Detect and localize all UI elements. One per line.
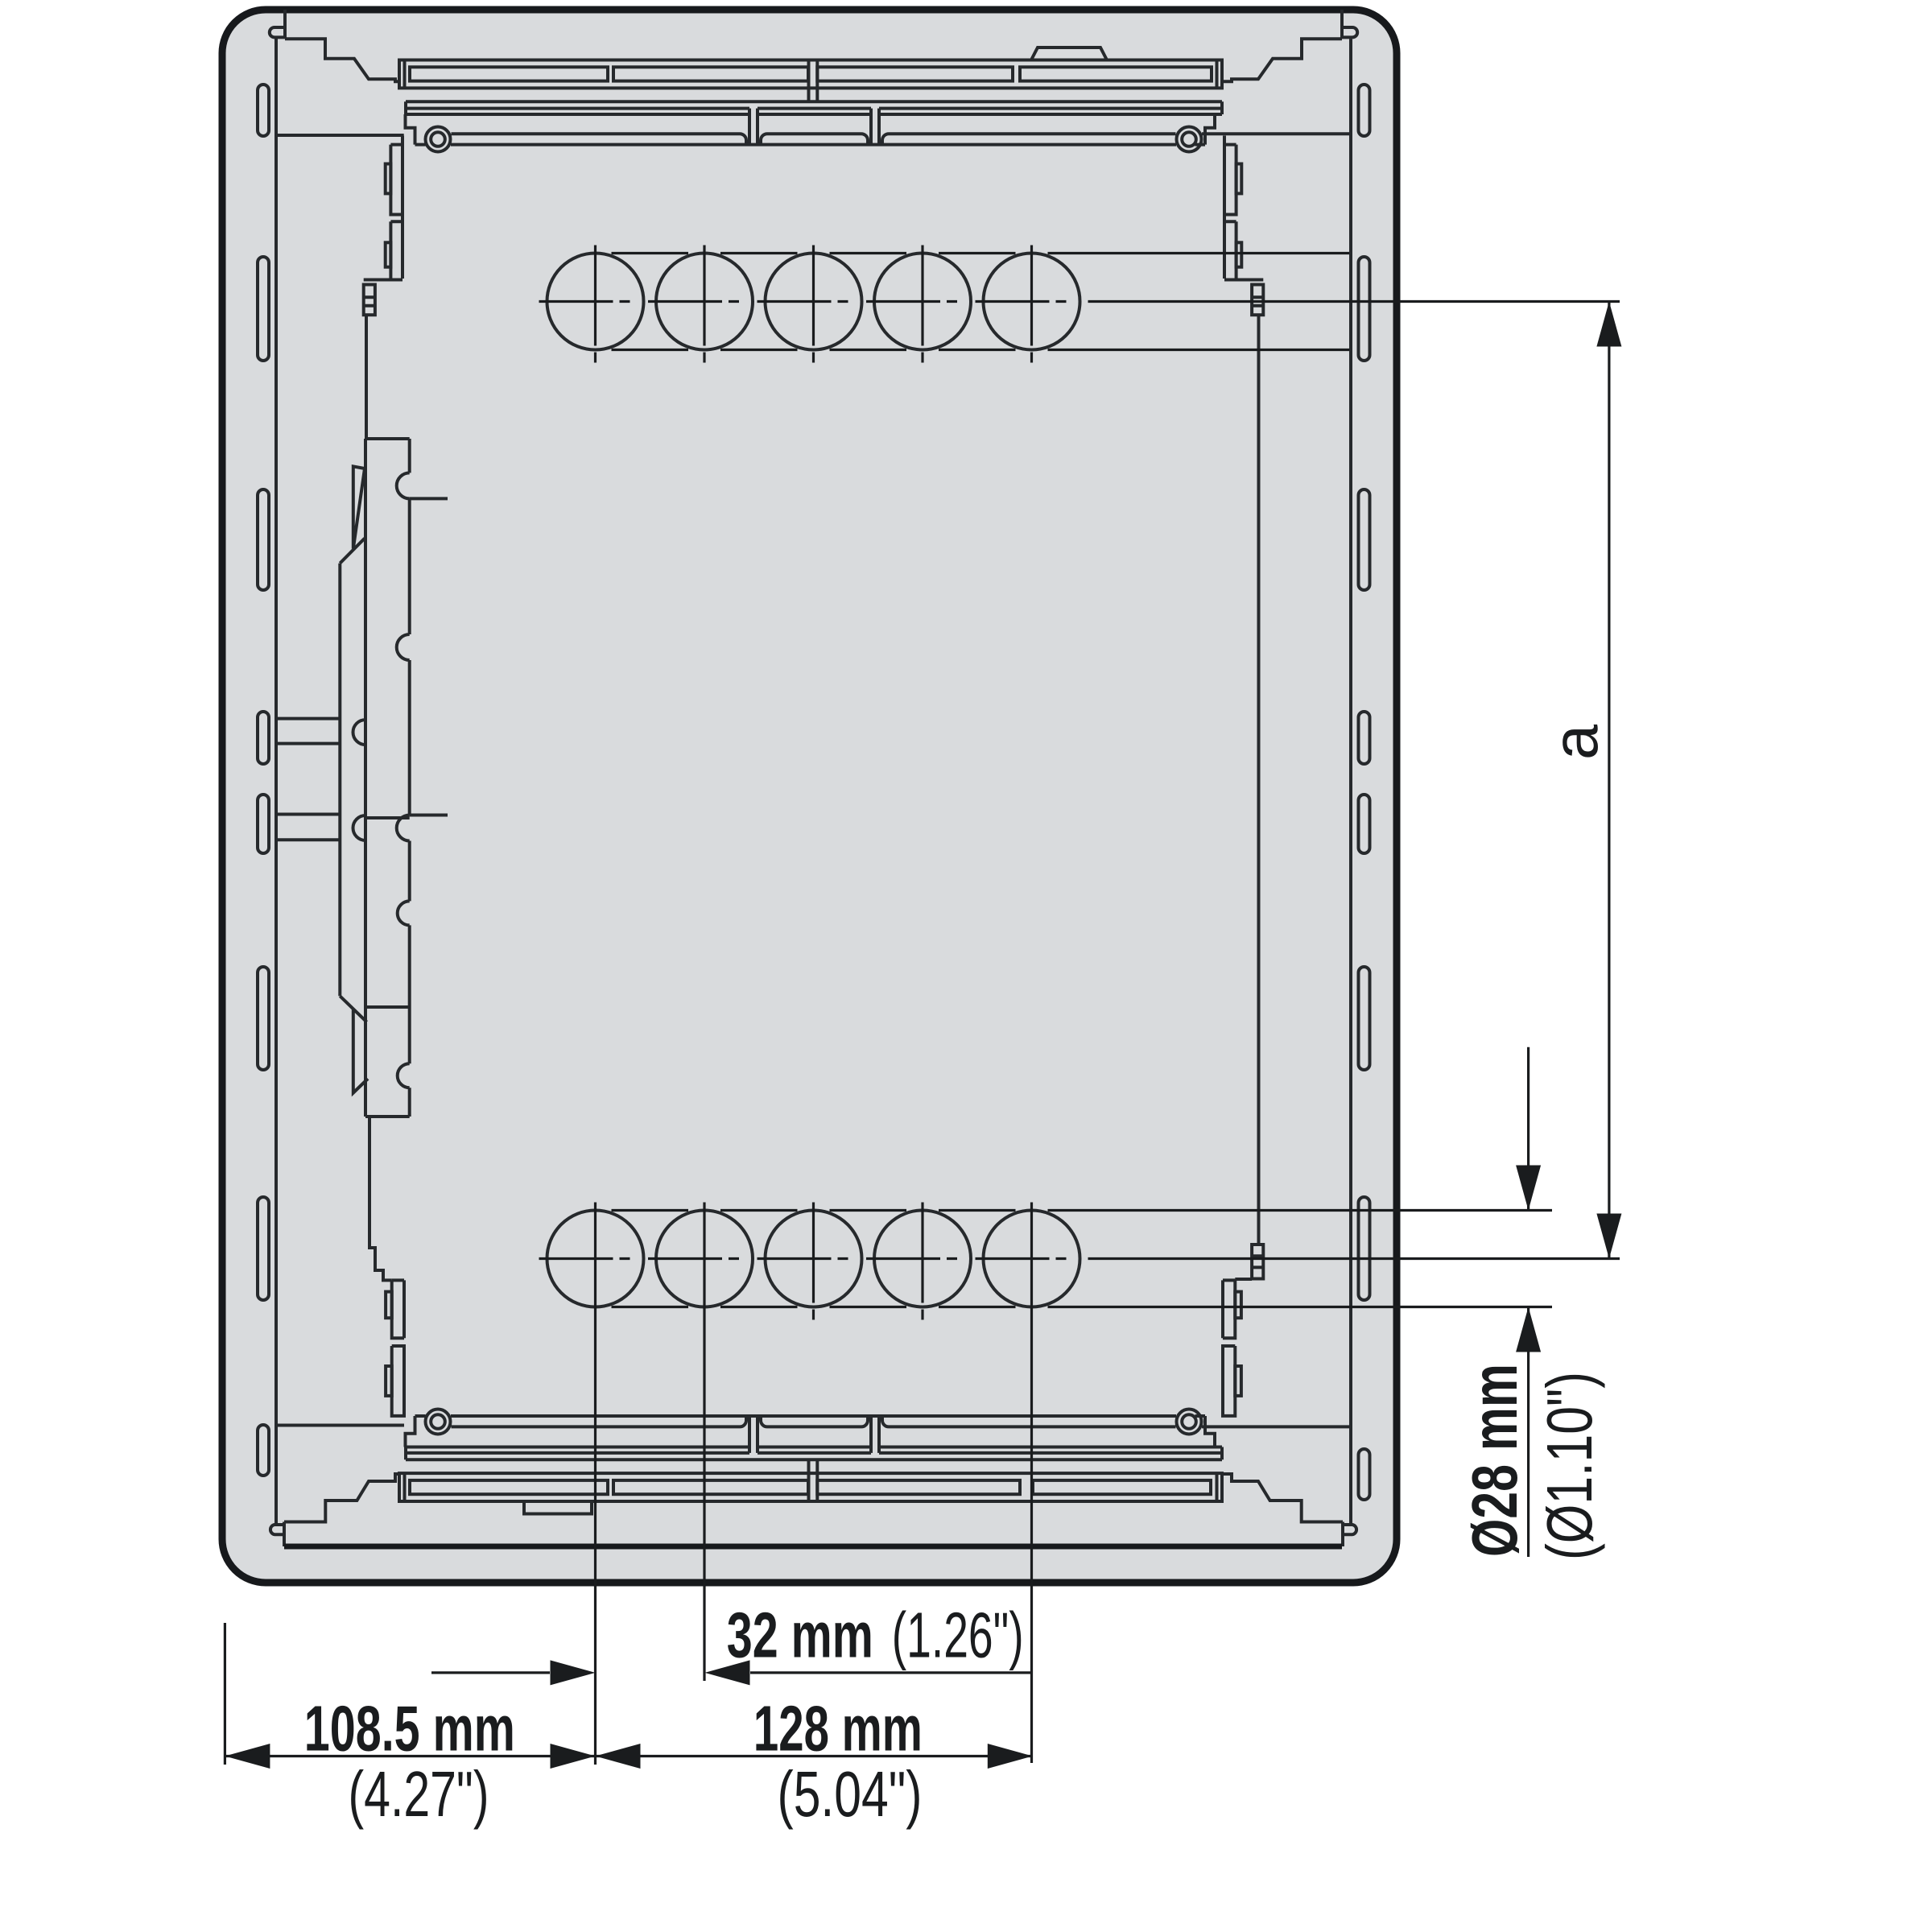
svg-text:a: a (1539, 724, 1611, 760)
svg-text:128 mm: 128 mm (753, 1692, 923, 1764)
svg-text:32 mm: 32 mm (727, 1600, 873, 1671)
svg-text:(4.27"): (4.27") (349, 1758, 489, 1830)
svg-text:108.5 mm: 108.5 mm (304, 1692, 515, 1764)
svg-text:(Ø1.10"): (Ø1.10") (1534, 1372, 1605, 1560)
svg-text:(1.26"): (1.26") (892, 1600, 1024, 1671)
svg-text:Ø28 mm: Ø28 mm (1459, 1364, 1530, 1557)
svg-text:(5.04"): (5.04") (778, 1758, 923, 1830)
